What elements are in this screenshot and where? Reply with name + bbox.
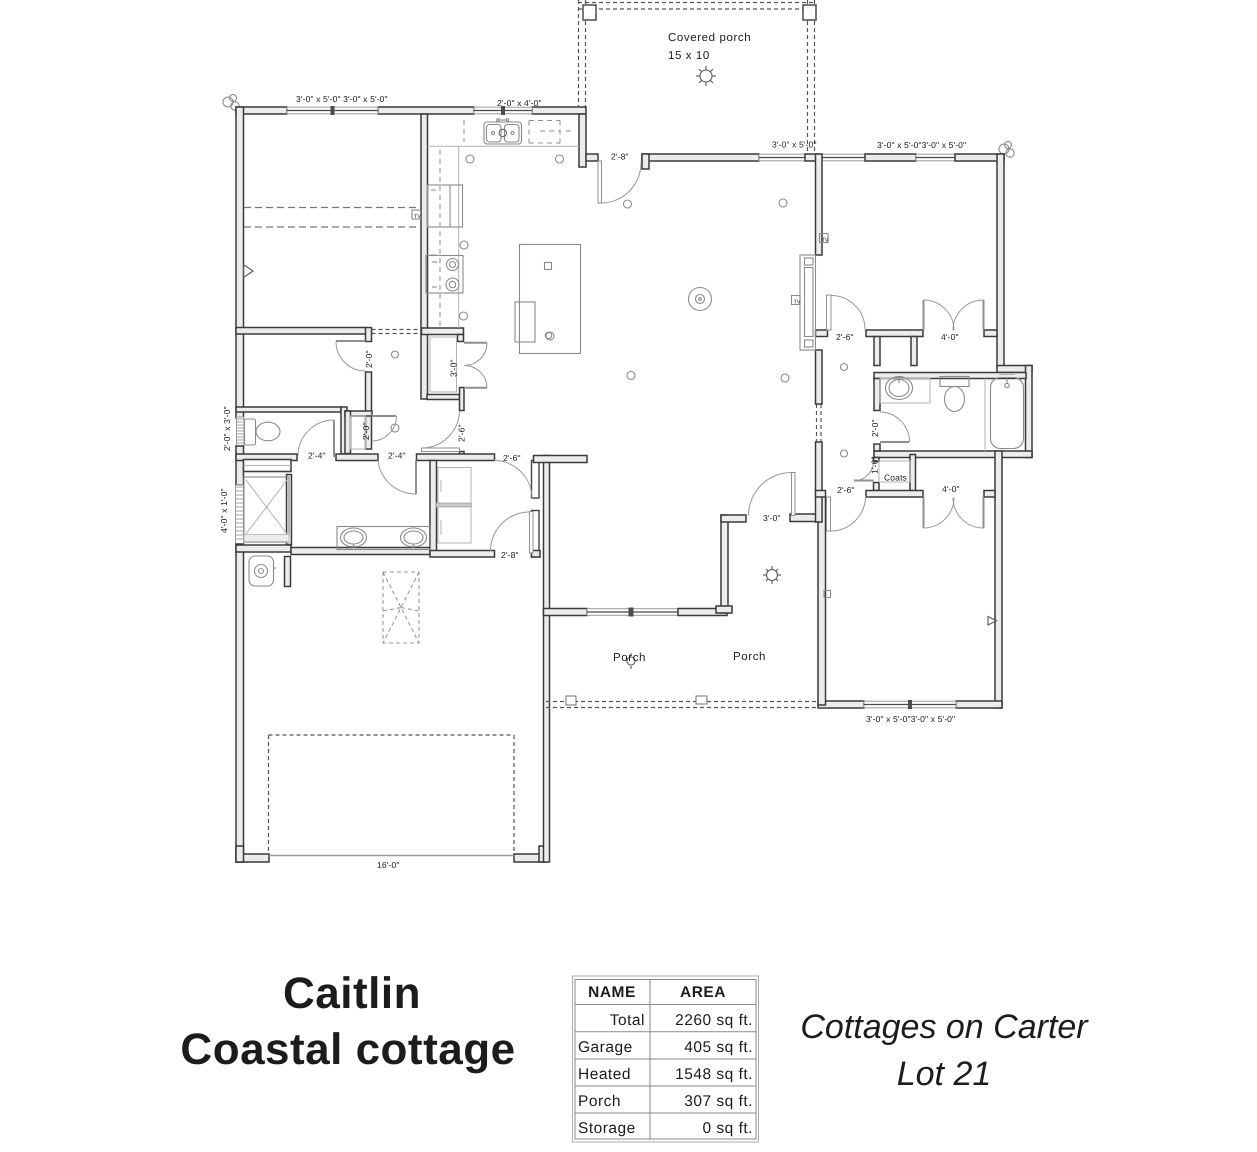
svg-text:2'-0": 2'-0": [364, 350, 374, 368]
svg-text:2'-6": 2'-6": [503, 453, 521, 463]
svg-text:Storage: Storage: [578, 1120, 636, 1137]
svg-text:2'-6": 2'-6": [836, 332, 854, 342]
svg-text:Coats: Coats: [884, 473, 907, 483]
svg-text:3'-0" x 5'-0"3'-0" x 5'-0": 3'-0" x 5'-0"3'-0" x 5'-0": [877, 140, 966, 150]
svg-text:16'-0": 16'-0": [377, 860, 400, 870]
svg-text:Porch: Porch: [733, 651, 766, 663]
svg-text:2'-0" x 4'-0": 2'-0" x 4'-0": [497, 98, 542, 108]
svg-text:1'-6": 1'-6": [870, 456, 880, 474]
svg-text:307 sq ft.: 307 sq ft.: [684, 1093, 753, 1110]
svg-text:4'-0": 4'-0": [941, 332, 959, 342]
svg-text:TV: TV: [822, 238, 829, 244]
svg-text:3'-0" x 5'-0" 3'-0" x 5'-0": 3'-0" x 5'-0" 3'-0" x 5'-0": [296, 94, 388, 104]
svg-text:4'-0" x 1'-0": 4'-0" x 1'-0": [219, 488, 229, 533]
svg-text:AREA: AREA: [680, 984, 726, 1001]
svg-text:Lot 21: Lot 21: [897, 1055, 992, 1093]
svg-text:2'-0": 2'-0": [361, 422, 371, 440]
svg-text:15 x 10: 15 x 10: [668, 50, 710, 62]
svg-text:1548 sq ft.: 1548 sq ft.: [675, 1066, 753, 1083]
svg-text:3'-0": 3'-0": [449, 359, 459, 377]
svg-text:Porch: Porch: [578, 1093, 621, 1110]
svg-text:Total: Total: [610, 1012, 645, 1029]
svg-text:2'-4": 2'-4": [308, 451, 326, 461]
svg-text:Caitlin: Caitlin: [283, 969, 421, 1018]
svg-text:2'-8": 2'-8": [501, 550, 519, 560]
svg-text:Porch: Porch: [613, 652, 646, 664]
svg-text:Cottages on Carter: Cottages on Carter: [800, 1008, 1089, 1046]
svg-text:2260 sq ft.: 2260 sq ft.: [675, 1012, 753, 1029]
svg-text:TV: TV: [794, 300, 801, 306]
svg-text:TV: TV: [414, 214, 421, 220]
svg-text:3'-0" x 5'-0"3'-0" x 5'-0": 3'-0" x 5'-0"3'-0" x 5'-0": [866, 714, 955, 724]
svg-text:Garage: Garage: [578, 1039, 633, 1056]
svg-text:2'-8": 2'-8": [611, 152, 629, 162]
svg-text:3'-0": 3'-0": [763, 513, 781, 523]
svg-text:2'-0": 2'-0": [870, 419, 880, 437]
svg-text:Coastal cottage: Coastal cottage: [180, 1025, 515, 1074]
svg-text:2'-6": 2'-6": [837, 485, 855, 495]
svg-text:405 sq ft.: 405 sq ft.: [684, 1039, 753, 1056]
svg-text:3'-0" x 5'-0": 3'-0" x 5'-0": [772, 140, 817, 150]
svg-text:0 sq ft.: 0 sq ft.: [702, 1120, 753, 1137]
svg-text:Covered porch: Covered porch: [668, 32, 751, 44]
svg-text:4'-0": 4'-0": [942, 484, 960, 494]
svg-text:2'-6": 2'-6": [457, 424, 467, 442]
svg-text:Heated: Heated: [578, 1066, 631, 1083]
svg-text:2'-4": 2'-4": [388, 451, 406, 461]
svg-text:2'-0" x 3'-0": 2'-0" x 3'-0": [222, 406, 232, 451]
svg-text:NAME: NAME: [588, 984, 636, 1001]
